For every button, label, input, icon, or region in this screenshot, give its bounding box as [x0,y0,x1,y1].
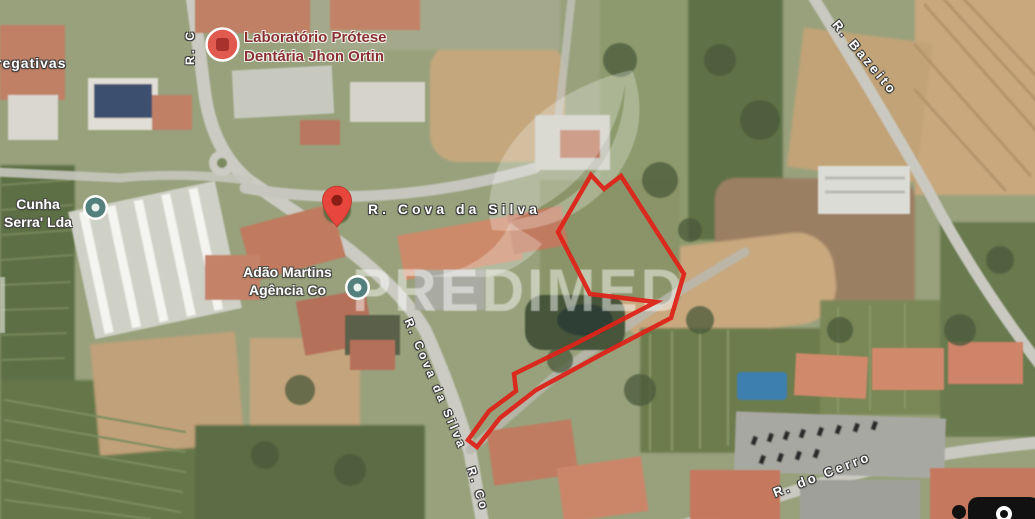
camera-lens [996,506,1012,519]
poi-label-martins: Adão Martins Agência Co [225,263,350,299]
poi-label-cunha: Cunha Serra' Lda [0,195,88,231]
property-pin-icon [322,185,352,228]
street-label-left-edge-partial: regativas [0,55,66,71]
poi-label-laboratorio: Laboratório Prótese Dentária Jhon Ortin [244,28,387,66]
poi-label-line1: Adão Martins [225,263,350,281]
street-label-cova-da-silva: R. Cova da Silva [368,201,558,217]
health-poi-marker-icon [205,27,240,62]
poi-label-line2: Dentária Jhon Ortin [244,47,387,66]
icon-fragment [952,505,966,519]
poi-label-line1: Cunha [0,195,88,213]
poi-label-line2: Serra' Lda [0,213,88,231]
camera-icon [968,497,1035,519]
street-label-top-left-partial: R. C [183,17,197,77]
poi-label-line2: Agência Co [225,281,350,299]
satellite-map-image: PREDIMED Laboratório Prótese Dentária Jh… [0,0,1035,519]
poi-label-line1: Laboratório Prótese [244,28,387,47]
